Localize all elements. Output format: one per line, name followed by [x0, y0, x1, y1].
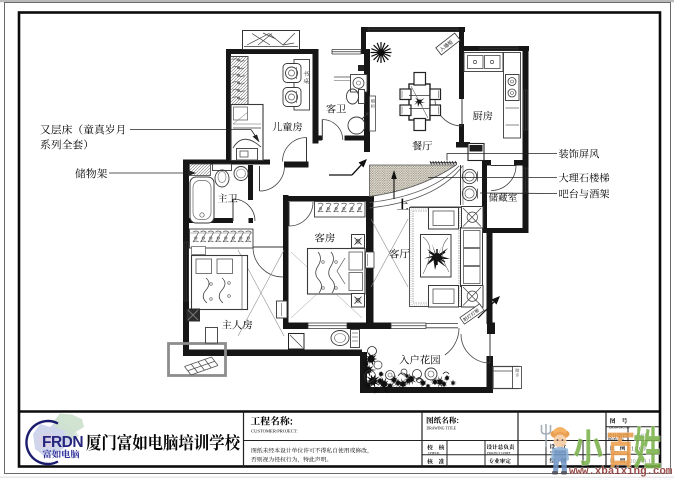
- svg-text:APPROVED: APPROVED: [489, 464, 507, 468]
- svg-text:CUSTOMER/PROJECT:: CUSTOMER/PROJECT:: [251, 429, 298, 434]
- svg-text:PROJECT CHIEF: PROJECT CHIEF: [487, 451, 511, 455]
- svg-text:www.xbaixing.com: www.xbaixing.com: [569, 466, 673, 478]
- svg-text:FRDN: FRDN: [42, 434, 83, 451]
- svg-text:APPROVE: APPROVE: [428, 464, 443, 468]
- svg-text:DRAWING No: DRAWING No: [609, 425, 630, 429]
- svg-text:DRAWING TITLE: DRAWING TITLE: [427, 427, 457, 431]
- svg-text:CHECK: CHECK: [428, 451, 440, 455]
